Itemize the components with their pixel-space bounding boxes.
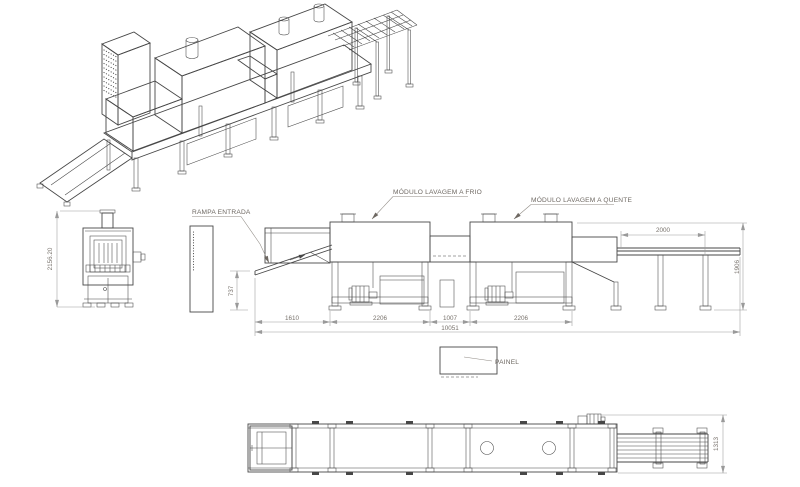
hot-module-label: MÓDULO LAVAGEM A QUENTE	[531, 195, 632, 204]
dim-plan-width: 1313	[713, 437, 720, 452]
entry-ramp-label: RAMPA ENTRADA	[192, 209, 251, 216]
dim-overall-height: 1906	[734, 260, 741, 275]
washing-line-drawing: 2156.20	[0, 0, 800, 487]
dim-segment-middle: 1007	[443, 315, 458, 322]
technical-drawing-sheet: 2156.20	[0, 0, 800, 487]
panel-label: PAINEL	[495, 359, 519, 366]
dim-total-length: 10051	[441, 325, 459, 332]
dim-exit-conveyor: 2000	[656, 227, 671, 234]
dim-segment-hot: 2206	[514, 315, 529, 322]
dim-segment-ramp: 1610	[285, 315, 300, 322]
cold-module-label: MÓDULO LAVAGEM A FRIO	[393, 187, 482, 196]
dim-segment-cold: 2206	[373, 315, 388, 322]
dim-front-height: 2156.20	[47, 247, 54, 270]
sheet-background	[0, 0, 800, 487]
dim-ramp-tip-height: 737	[228, 285, 235, 296]
